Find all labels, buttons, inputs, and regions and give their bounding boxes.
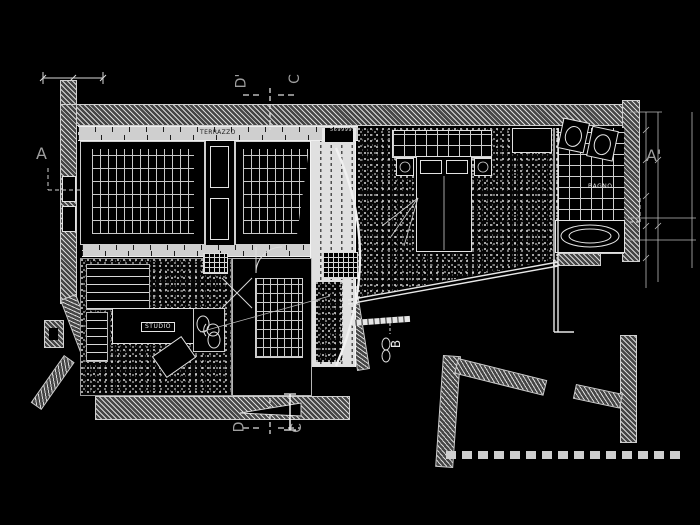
deck-mosaic-strip: [316, 282, 342, 362]
dimension-number: 5699999: [330, 128, 356, 133]
section-marker-d-top: D': [234, 74, 248, 89]
wc-room: [193, 308, 225, 352]
terrace-room-1-paving: [92, 149, 194, 234]
section-marker-c-bottom: C: [290, 423, 304, 433]
bathtub: [555, 220, 625, 253]
section-marker-d-bottom: D: [232, 422, 246, 433]
window-left-1: [62, 176, 76, 202]
wall-top: [63, 104, 630, 126]
floor-plan-canvas: A A' D' C D C B STUDIO BAGNO TERRAZZO 56…: [0, 0, 700, 525]
deck-grid-mat: [322, 252, 358, 279]
terrace-divider-bar-2: [210, 198, 229, 240]
wall-left: [60, 104, 77, 304]
wall-t-vertical: [620, 335, 637, 443]
wall-bottom-right-horizontal: [454, 358, 547, 396]
fireplace-slot: [49, 328, 58, 340]
nightstand-right: [474, 158, 492, 176]
section-marker-b: B: [390, 340, 402, 348]
wall-t-stub: [573, 384, 623, 409]
studio-label: STUDIO: [141, 322, 175, 332]
wall-left-stub: [60, 80, 77, 106]
closet-black: [512, 128, 552, 153]
nightstand-left: [396, 158, 414, 176]
closet-grid: [392, 130, 492, 158]
wall-bottom: [95, 396, 350, 420]
stairs-ladder: [86, 312, 108, 362]
pillow-right: [446, 160, 468, 174]
section-marker-a-right: A': [646, 148, 661, 164]
middle-brick-room: [255, 278, 303, 358]
terrace-label: TERRAZZO: [200, 130, 236, 136]
section-marker-a-left: A: [36, 146, 47, 162]
wall-spur-bottom-left: [31, 355, 75, 410]
section-marker-c-top: C: [288, 74, 302, 84]
mid-wall-strip: [82, 244, 312, 257]
terrace-divider-bar-1: [210, 146, 229, 188]
window-left-2: [62, 206, 76, 232]
stairs-block: [86, 264, 150, 310]
bagno-label: BAGNO: [588, 184, 612, 190]
grid-mat-2: [203, 253, 228, 274]
dashed-boundary: [446, 451, 684, 459]
pillow-left: [420, 160, 442, 174]
